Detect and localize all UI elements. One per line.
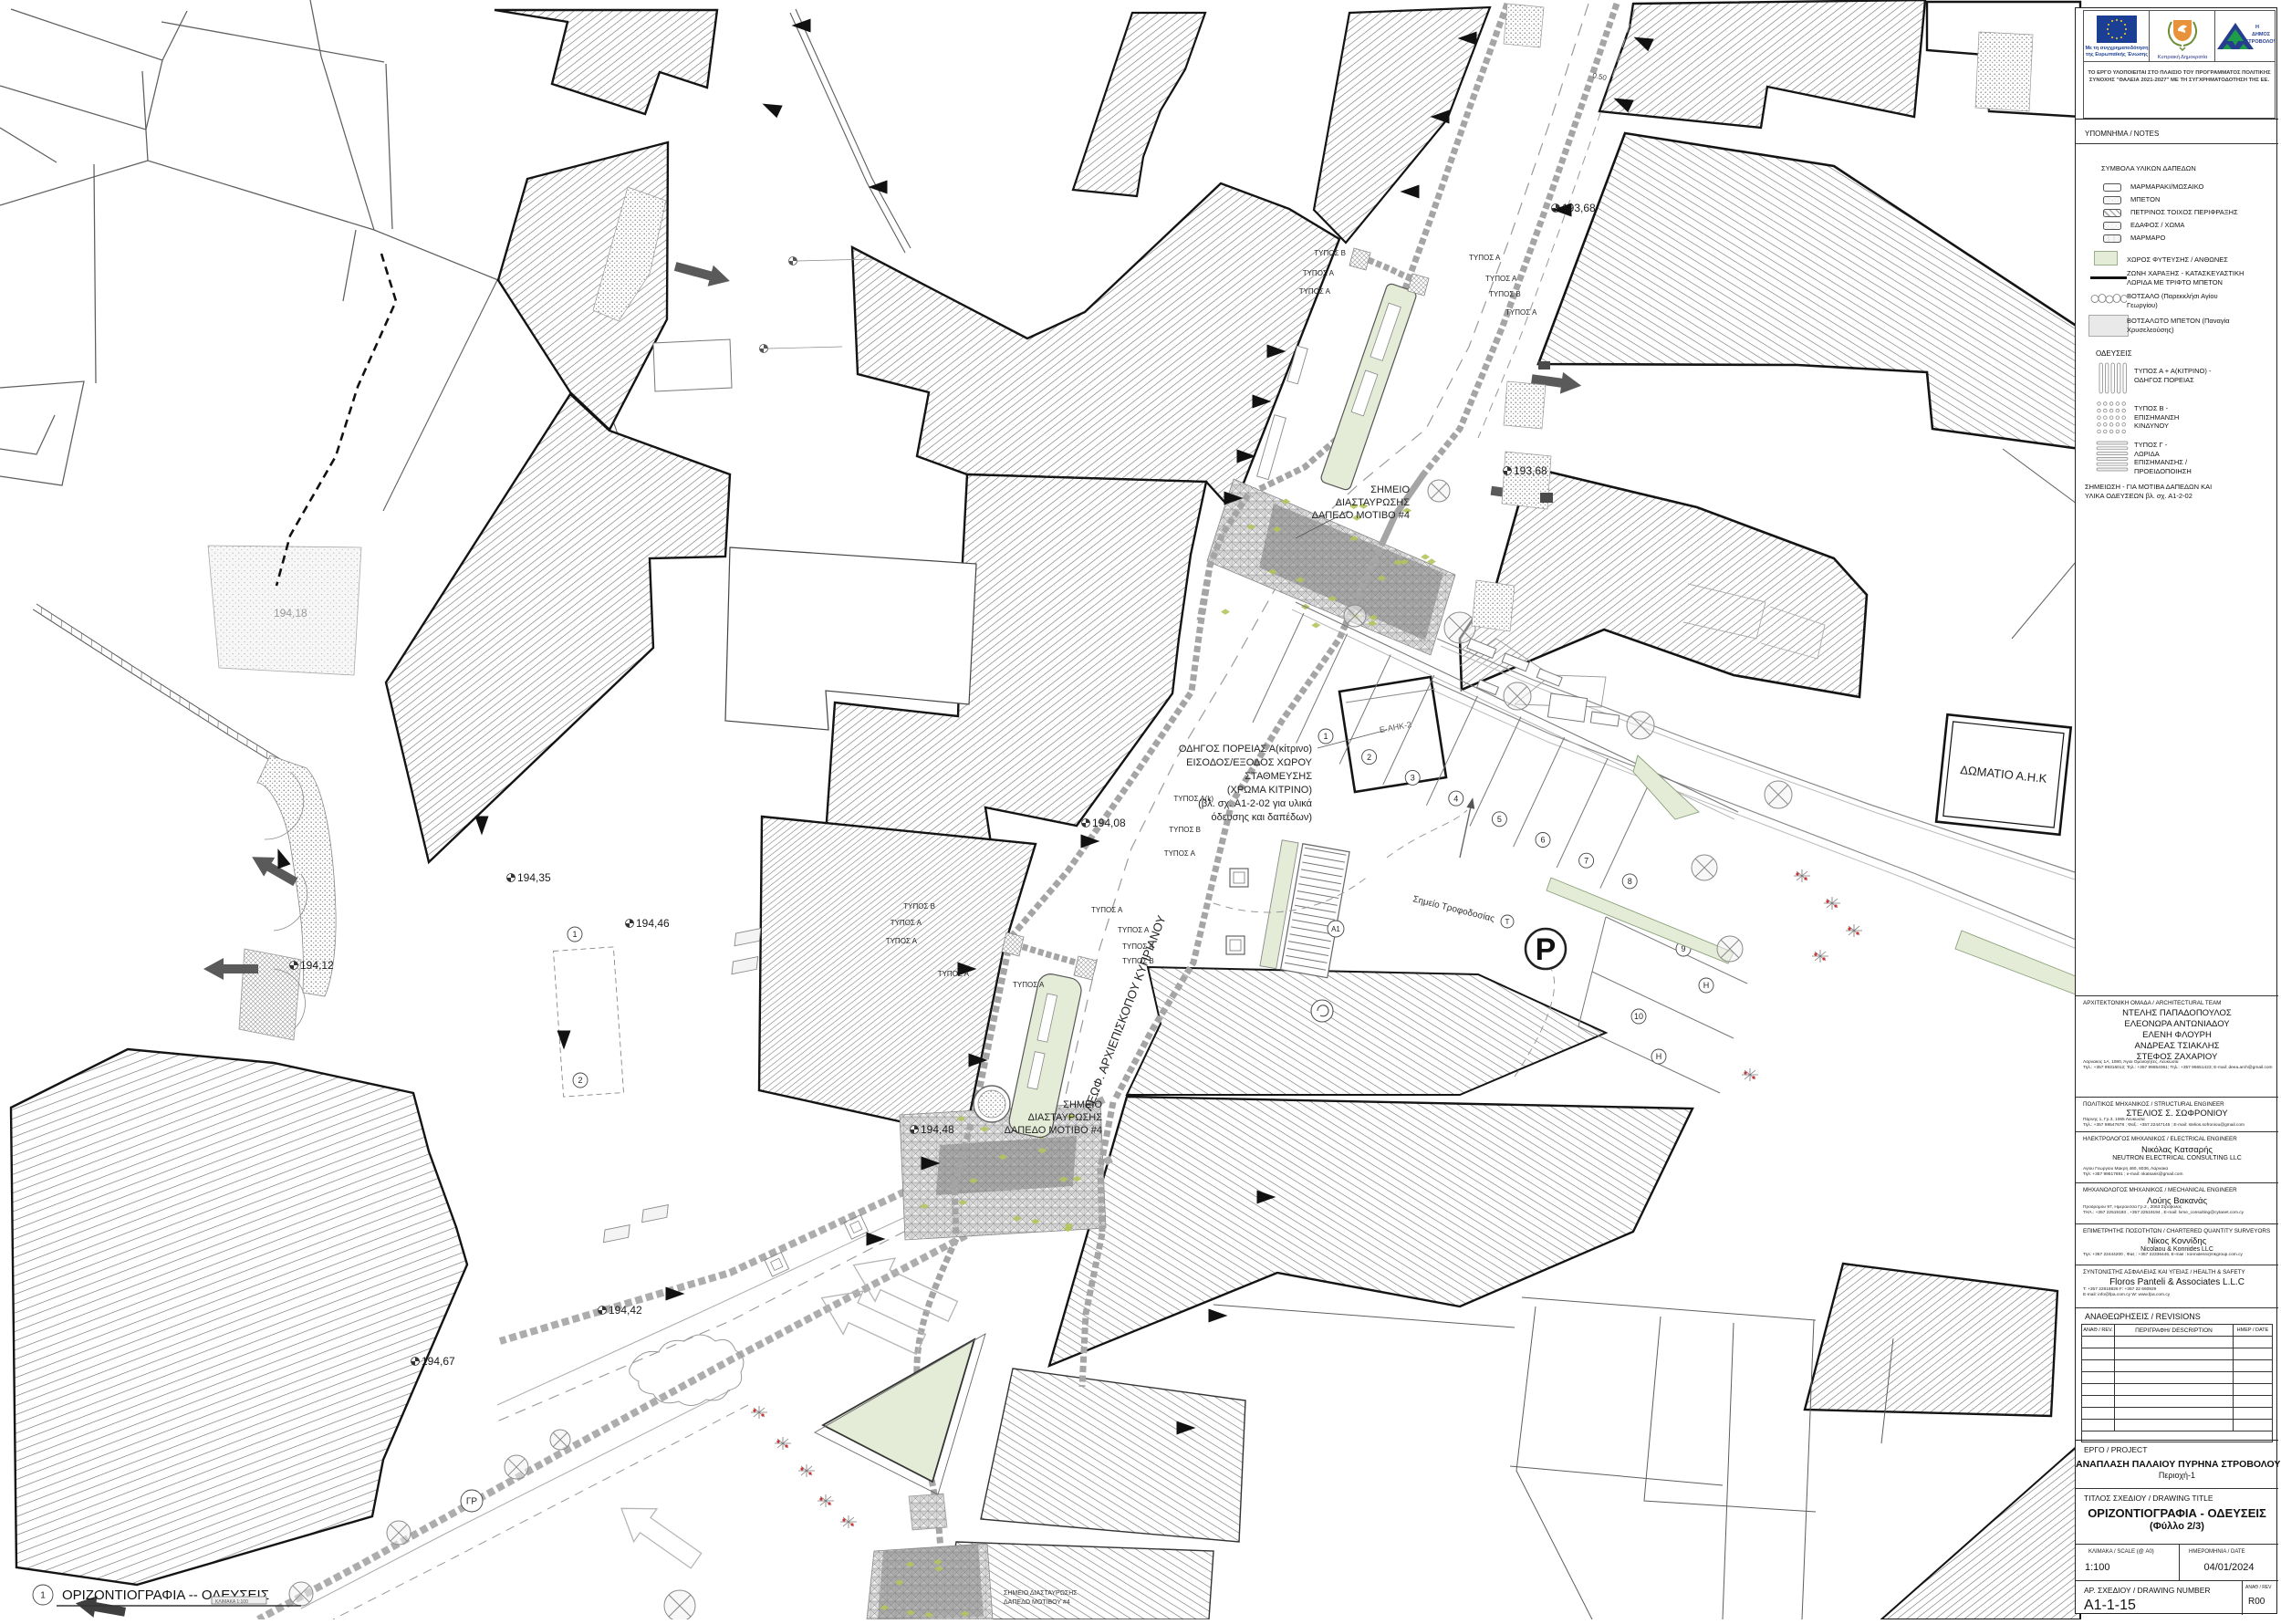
svg-text:1: 1 [572,930,577,939]
svg-text:ΤΥΠΟΣ Α: ΤΥΠΟΣ Α [938,970,970,978]
svg-text:ΕΙΣΟΔΟΣ/ΕΞΟΔΟΣ ΧΩΡΟΥ: ΕΙΣΟΔΟΣ/ΕΞΟΔΟΣ ΧΩΡΟΥ [1186,757,1312,768]
svg-text:5: 5 [1497,815,1502,824]
svg-text:ΔΑΠΕΔΟ ΜΟΤΙΒΟ #4: ΔΑΠΕΔΟ ΜΟΤΙΒΟ #4 [1005,1125,1102,1136]
svg-text:ΤΥΠΟΣ Α: ΤΥΠΟΣ Α [1091,906,1123,914]
svg-text:7: 7 [1584,856,1588,865]
svg-text:ΤΥΠΟΣ Β: ΤΥΠΟΣ Β [903,902,935,911]
svg-text:ΤΥΠΟΣ Α: ΤΥΠΟΣ Α [1303,269,1335,277]
svg-text:Η: Η [2255,25,2259,30]
svg-text:ΔΗΜΟΣ: ΔΗΜΟΣ [2252,32,2271,37]
svg-text:1: 1 [40,1591,46,1601]
svg-text:194,35: 194,35 [517,871,551,884]
svg-text:194,18: 194,18 [274,607,307,619]
svg-text:ΤΥΠΟΣ Α: ΤΥΠΟΣ Α [891,919,922,927]
svg-text:ΚΛΙΜΑΚΑ 1:100: ΚΛΙΜΑΚΑ 1:100 [215,1599,248,1605]
svg-text:10: 10 [1634,1012,1643,1021]
svg-text:6: 6 [1540,836,1545,845]
svg-text:H: H [1703,981,1710,990]
svg-text:ΔΑΠΕΔΟ ΜΟΤΙΒΟ #4: ΔΑΠΕΔΟ ΜΟΤΙΒΟ #4 [1312,510,1410,521]
svg-text:όδευσης και δαπέδων): όδευσης και δαπέδων) [1212,812,1313,823]
svg-text:ΔΙΑΣΤΑΥΡΩΣΗΣ: ΔΙΑΣΤΑΥΡΩΣΗΣ [1336,497,1411,508]
svg-text:193,68: 193,68 [1514,464,1547,477]
svg-text:ΓΡ: ΓΡ [466,1497,478,1507]
svg-text:Κυπριακή Δημοκρατία: Κυπριακή Δημοκρατία [2158,54,2208,60]
svg-text:ΔΑΠΕΔΟ ΜΟΤΙΒΟΥ #4: ΔΑΠΕΔΟ ΜΟΤΙΒΟΥ #4 [1004,1599,1070,1606]
svg-text:194,46: 194,46 [636,917,670,930]
svg-text:194,48: 194,48 [921,1123,954,1136]
svg-text:ΔΙΑΣΤΑΥΡΩΣΗΣ: ΔΙΑΣΤΑΥΡΩΣΗΣ [1028,1112,1103,1123]
svg-text:(βλ. σχ. Α1-2-02 για υλικά: (βλ. σχ. Α1-2-02 για υλικά [1198,798,1313,809]
svg-text:ΣΗΜΕΙΟ: ΣΗΜΕΙΟ [1063,1099,1102,1110]
svg-text:ΣΤΡΟΒΟΛΟΥ: ΣΤΡΟΒΟΛΟΥ [2245,39,2275,45]
svg-text:194,12: 194,12 [300,959,334,972]
svg-text:ΣΗΜΕΙΟ ΔΙΑΣΤΑΥΡΩΣΗΣ: ΣΗΜΕΙΟ ΔΙΑΣΤΑΥΡΩΣΗΣ [1004,1590,1078,1597]
svg-text:ΟΔΗΓΟΣ ΠΟΡΕΙΑΣ Α(κίτρινο): ΟΔΗΓΟΣ ΠΟΡΕΙΑΣ Α(κίτρινο) [1179,744,1312,755]
svg-text:8: 8 [1628,877,1632,886]
svg-text:ΤΥΠΟΣ Α: ΤΥΠΟΣ Α [1299,287,1331,296]
svg-text:ΤΥΠΟΣ Α(k): ΤΥΠΟΣ Α(k) [1173,795,1213,803]
svg-text:194,67: 194,67 [422,1355,455,1368]
svg-text:(ΧΡΩΜΑ ΚΙΤΡΙΝΟ): (ΧΡΩΜΑ ΚΙΤΡΙΝΟ) [1227,785,1312,796]
svg-text:ΤΥΠΟΣ Β: ΤΥΠΟΣ Β [1314,249,1346,257]
svg-text:ΤΥΠΟΣ Α: ΤΥΠΟΣ Α [1118,926,1150,934]
svg-text:A1: A1 [1331,925,1340,933]
svg-text:H: H [1656,1052,1662,1061]
svg-text:ΣΗΜΕΙΟ: ΣΗΜΕΙΟ [1370,484,1410,495]
svg-text:1: 1 [1323,732,1328,741]
svg-text:194,08: 194,08 [1092,817,1126,829]
svg-text:T: T [1505,918,1510,926]
svg-text:ΤΥΠΟΣ Α: ΤΥΠΟΣ Α [1122,942,1154,951]
svg-text:2: 2 [1367,753,1371,762]
svg-text:ΤΥΠΟΣ Α: ΤΥΠΟΣ Α [1485,275,1517,283]
svg-text:ΤΥΠΟΣ Β: ΤΥΠΟΣ Β [1489,290,1521,298]
svg-text:2: 2 [578,1076,582,1085]
svg-text:ΣΤΑΘΜΕΥΣΗΣ: ΣΤΑΘΜΕΥΣΗΣ [1245,771,1312,782]
svg-text:ΤΥΠΟΣ Α: ΤΥΠΟΣ Α [1013,981,1045,989]
svg-text:ΤΥΠΟΣ Α: ΤΥΠΟΣ Α [1469,254,1501,262]
svg-text:3: 3 [1411,774,1415,783]
svg-text:ΤΥΠΟΣ Α: ΤΥΠΟΣ Α [1164,849,1196,858]
svg-text:ΤΥΠΟΣ Α: ΤΥΠΟΣ Α [1505,308,1537,317]
svg-text:ΤΥΠΟΣ Α: ΤΥΠΟΣ Α [886,937,918,945]
svg-text:4: 4 [1453,794,1458,803]
svg-text:ΤΥΠΟΣ Β: ΤΥΠΟΣ Β [1169,826,1201,834]
svg-text:P: P [1536,932,1557,967]
svg-text:ΤΥΠΟΣ Β: ΤΥΠΟΣ Β [1122,957,1154,965]
svg-text:194,42: 194,42 [609,1304,642,1317]
